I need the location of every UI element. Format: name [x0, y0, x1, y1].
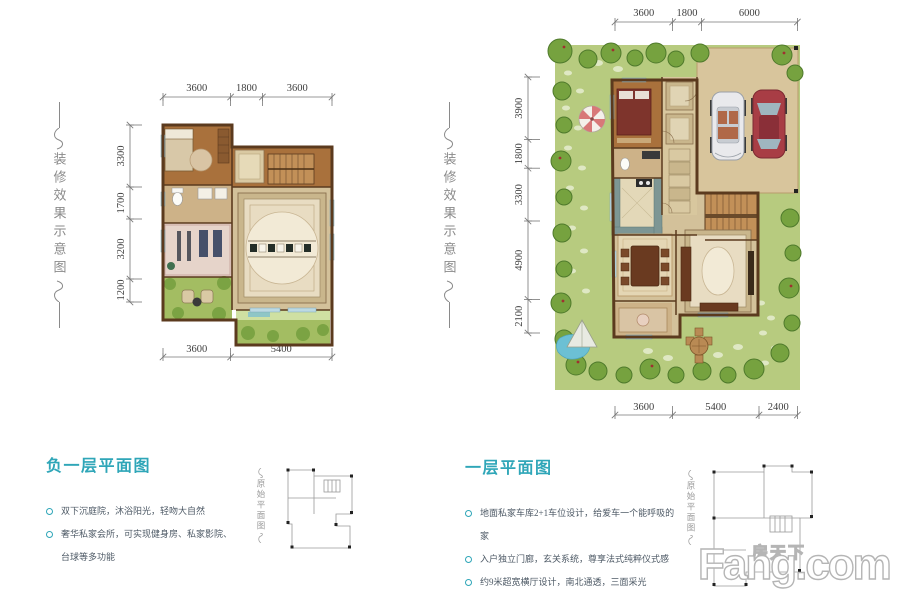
feature-bullet: 约9米超宽横厅设计，南北通透，三面采光 [465, 571, 680, 594]
dim-label: 1700 [116, 193, 127, 214]
fang-watermark: 房天下 Fang.com [694, 534, 900, 600]
toilet [621, 158, 630, 170]
dim-label: 3600 [633, 8, 654, 19]
car-white [710, 92, 746, 160]
deco-caption-left: 装修效果示意图 [50, 152, 69, 278]
dim-label: 2400 [768, 402, 789, 413]
flourish-line [59, 102, 60, 128]
feature-text: 奢华私家会所，可实现健身房、私家影院、台球等多功能 [61, 523, 232, 569]
bullet-dot-icon [465, 510, 472, 517]
dining-room [618, 234, 672, 296]
dim-label: 1800 [236, 83, 257, 94]
sofa [681, 247, 691, 301]
study-room [614, 303, 672, 337]
basement-building [161, 125, 334, 345]
window [250, 308, 280, 312]
basement-original-sketch [280, 464, 360, 580]
bullet-dot-icon [46, 508, 53, 515]
dim-label: 6000 [739, 8, 760, 19]
firstfloor-bathroom [612, 148, 662, 178]
basement-title: 负一层平面图 [46, 452, 232, 476]
feature-bullet: 地面私家车库2+1车位设计，给爱车一个能呼吸的家 [465, 502, 680, 548]
deco-caption-middle: 装修效果示意图 [440, 152, 459, 278]
caption-curl-icon [686, 470, 696, 480]
dim-label: 1200 [116, 280, 127, 301]
dim-label: 3600 [186, 83, 207, 94]
caption-curl-icon [256, 533, 266, 543]
tv-cabinet [748, 251, 754, 295]
foyer [235, 150, 264, 183]
feature-text: 双下沉庭院，沐浴阳光，轻吻大自然 [61, 500, 205, 523]
bathroom-counter [642, 151, 660, 159]
dim-label: 3900 [514, 98, 525, 119]
dim-label: 3600 [287, 83, 308, 94]
kitchen [612, 178, 662, 235]
dim-label: 1800 [677, 8, 698, 19]
flourish-line [449, 102, 450, 128]
dim-label: 3200 [116, 239, 127, 260]
entry-corridor [662, 77, 697, 215]
flourish-line [59, 302, 60, 328]
bullet-dot-icon [465, 579, 472, 586]
basement-dims-bottom: 3600 5400 [160, 344, 335, 361]
bed-bench [617, 138, 651, 143]
sketch-caption-text: 原始平面图 [685, 481, 697, 534]
first-floor-plan: 3600 1800 6000 3900 1800 3300 4900 2100 [498, 3, 810, 425]
bullet-dot-icon [465, 556, 472, 563]
firstfloor-dims-left: 3900 1800 3300 4900 2100 [514, 74, 540, 336]
plant [167, 262, 175, 270]
dim-label: 2100 [514, 306, 525, 327]
feature-bullet: 奢华私家会所，可实现健身房、私家影院、台球等多功能 [46, 523, 232, 569]
firstfloor-dims-bottom: 3600 5400 2400 [612, 402, 801, 419]
feature-text: 入户独立门廊，玄关系统，尊享法式纯粹仪式感 [480, 548, 669, 571]
patio-table [193, 298, 202, 307]
patio-chair [201, 290, 213, 303]
dim-label: 1800 [514, 143, 525, 164]
feature-text: 约9米超宽横厅设计，南北通透，三面采光 [480, 571, 647, 594]
feature-text: 地面私家车库2+1车位设计，给爱车一个能呼吸的家 [480, 502, 680, 548]
flourish-curl-icon [439, 280, 459, 302]
basement-dims-left: 3300 1700 3200 1200 [116, 122, 142, 305]
firstfloor-bedroom [612, 80, 662, 148]
water-feature [248, 312, 270, 317]
watermark-logo: Fang.com [698, 543, 890, 587]
dim-label: 5400 [705, 402, 726, 413]
flourish-curl-icon [49, 128, 69, 150]
patio-chair [182, 290, 194, 303]
caption-curl-icon [256, 468, 266, 478]
deco-flourish-left: 装修效果示意图 [46, 102, 72, 328]
basement-floor-plan: 3600 1800 3600 3300 1700 3200 1200 [98, 78, 360, 368]
stairs [268, 154, 314, 184]
dim-label: 3600 [186, 344, 207, 355]
rug [190, 149, 212, 171]
sketch-caption-text: 原始平面图 [255, 479, 267, 532]
flourish-curl-icon [439, 128, 459, 150]
dim-label: 3300 [514, 184, 525, 205]
car-red [751, 90, 787, 158]
sofa [700, 303, 738, 311]
umbrella [579, 106, 605, 132]
feature-bullet: 双下沉庭院，沐浴阳光，轻吻大自然 [46, 500, 232, 523]
basement-sketch-caption: 原始平面图 [254, 468, 268, 543]
floorplan-page: 装修效果示意图 装修效果示意图 [0, 0, 900, 600]
firstfloor-section: 一层平面图 地面私家车库2+1车位设计，给爱车一个能呼吸的家 入户独立门廊，玄关… [465, 454, 680, 594]
dim-label: 4900 [514, 250, 525, 271]
firstfloor-title: 一层平面图 [465, 454, 680, 478]
deco-flourish-middle: 装修效果示意图 [436, 102, 462, 328]
toilet [172, 188, 183, 206]
firstfloor-dims-top: 3600 1800 6000 [612, 8, 801, 31]
theater-seats [250, 244, 311, 252]
feature-bullet: 入户独立门廊，玄关系统，尊享法式纯粹仪式感 [465, 548, 680, 571]
basement-dims-top: 3600 1800 3600 [160, 83, 335, 106]
flourish-line [449, 302, 450, 328]
dim-label: 3300 [116, 146, 127, 167]
dining-table [631, 246, 659, 286]
flourish-curl-icon [49, 280, 69, 302]
wardrobe [218, 129, 229, 163]
living-room [681, 230, 754, 312]
dim-label: 3600 [633, 402, 654, 413]
hall-carpet [238, 193, 326, 303]
window [288, 308, 316, 312]
firstfloor-site [548, 39, 803, 390]
bullet-dot-icon [46, 531, 53, 538]
basement-section: 负一层平面图 双下沉庭院，沐浴阳光，轻吻大自然 奢华私家会所，可实现健身房、私家… [46, 452, 232, 569]
